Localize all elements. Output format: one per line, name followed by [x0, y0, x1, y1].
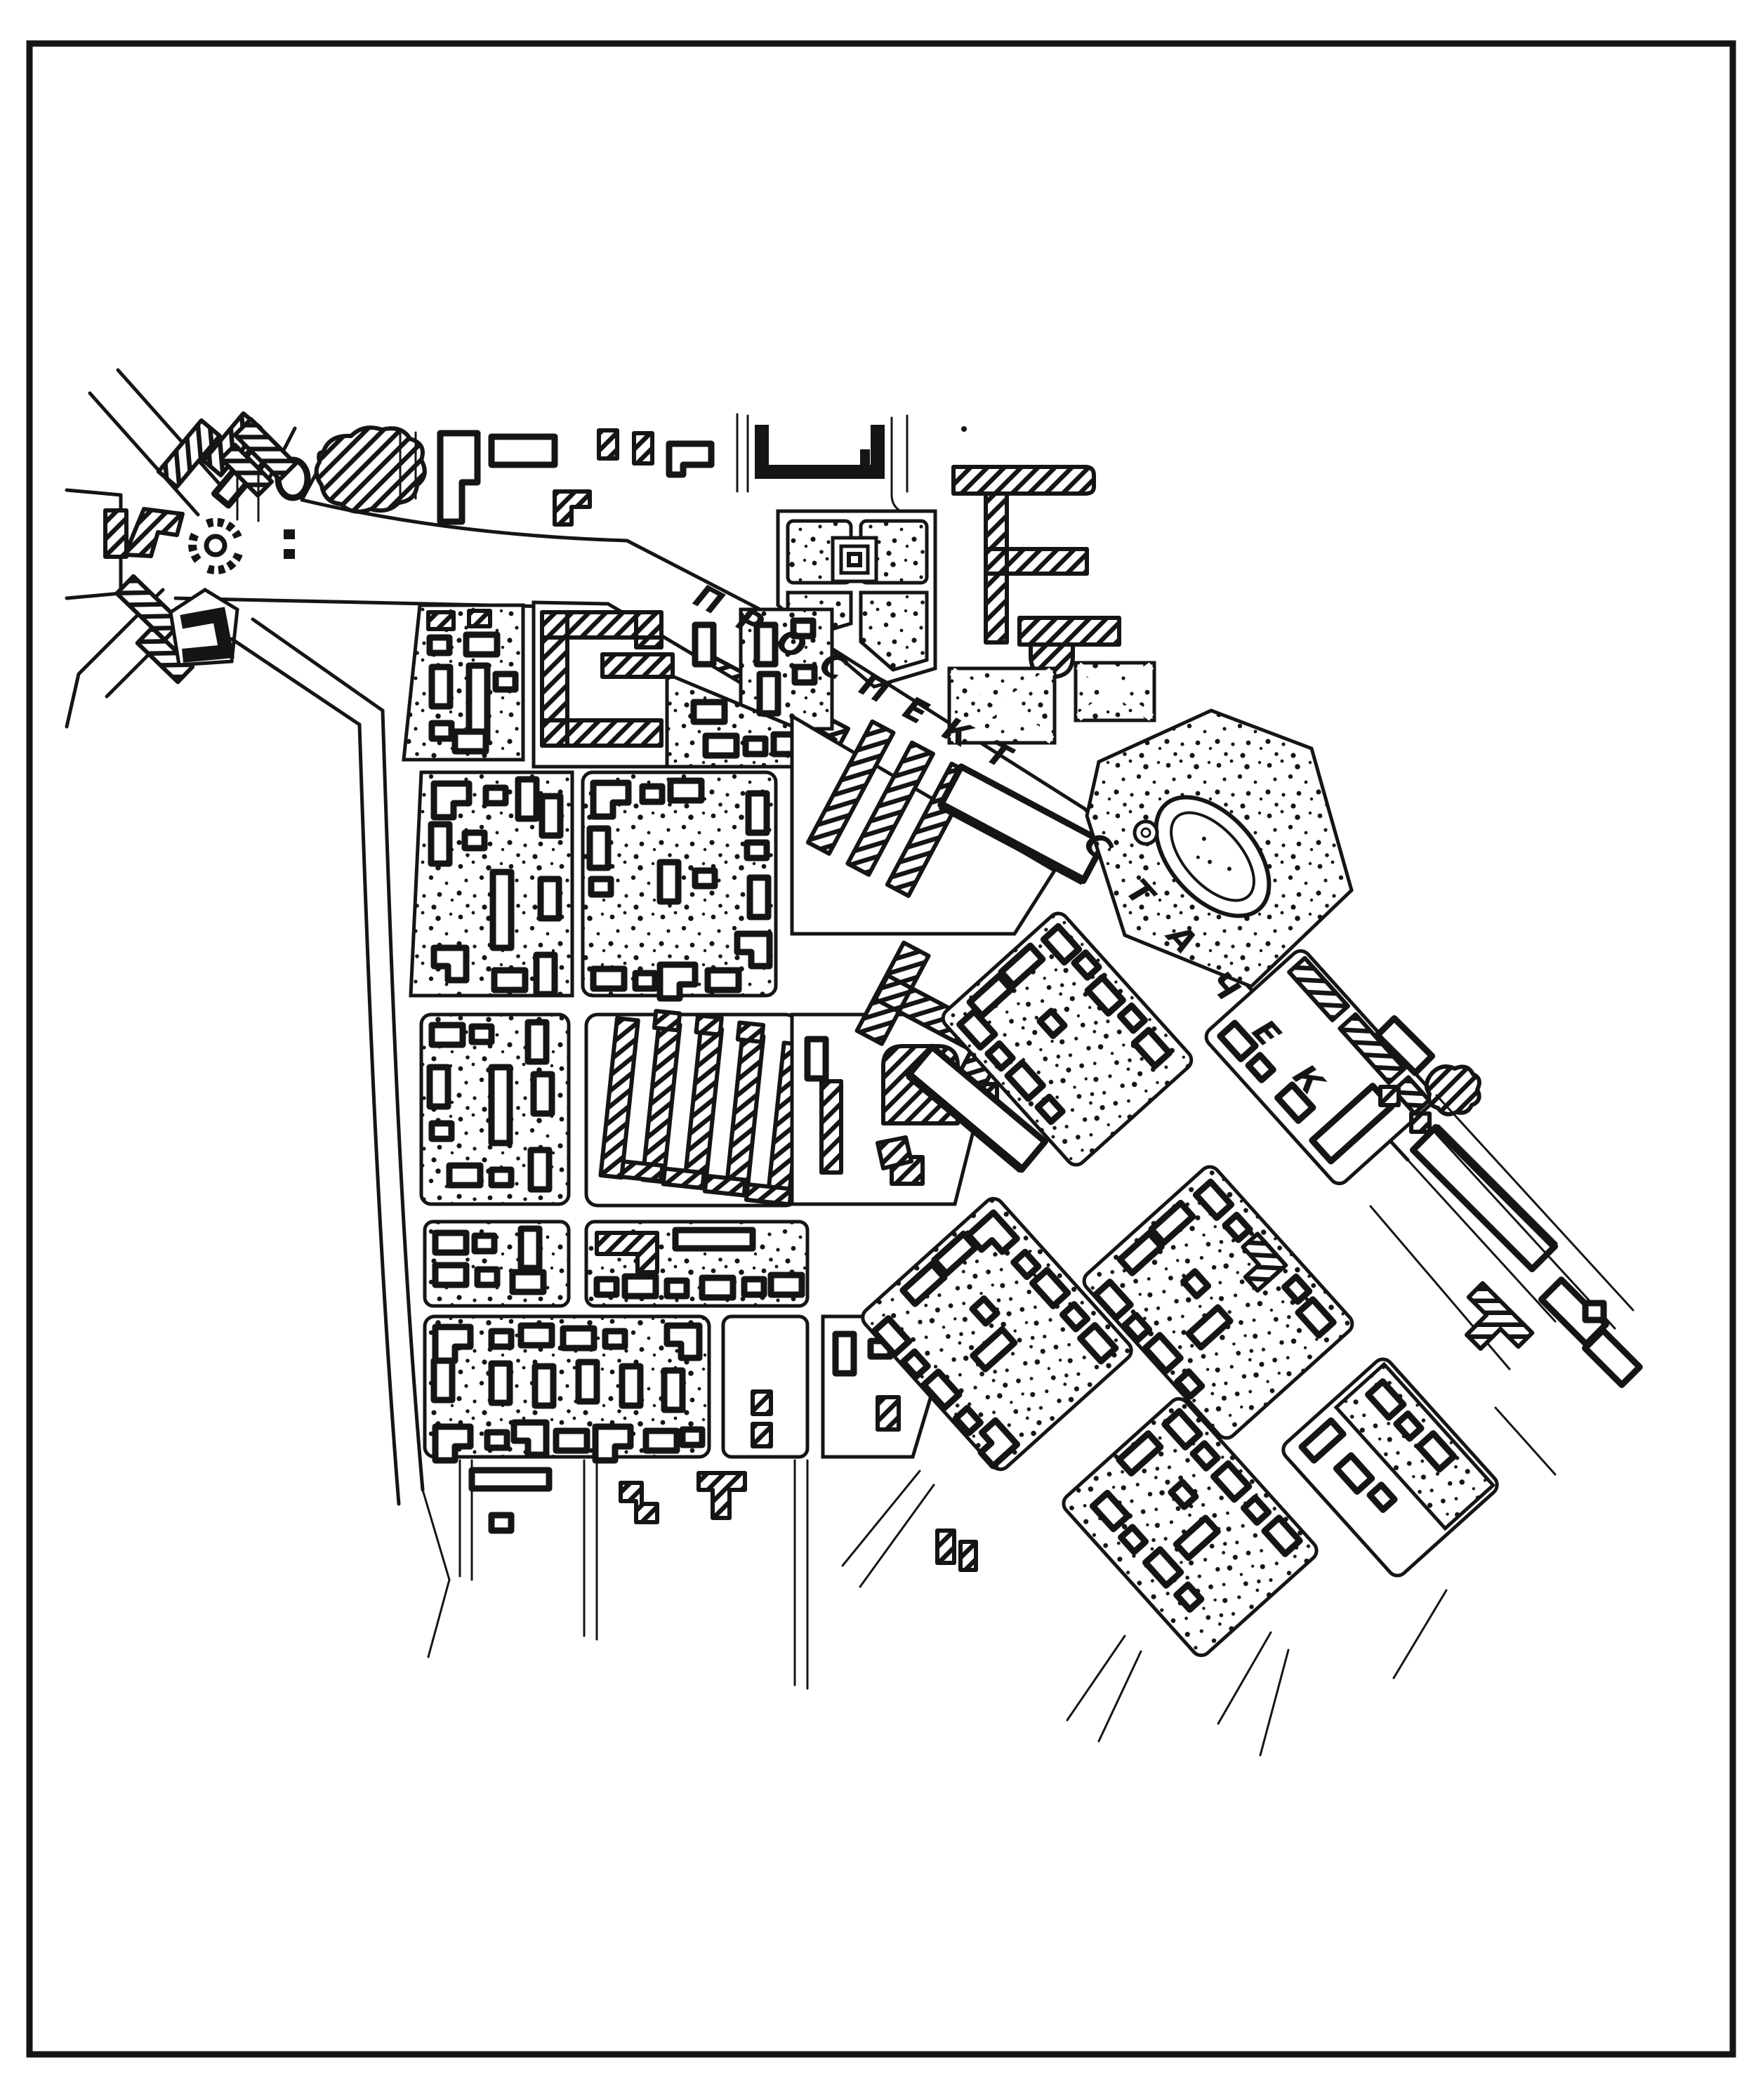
block-a1 [404, 605, 523, 760]
plan-sheet: П Р О С П Е К Т С Т А Ч Е К [0, 0, 1763, 2100]
tree-mass [317, 428, 425, 512]
block-b5 [723, 1316, 807, 1457]
block-a5 [425, 1316, 709, 1460]
fountain [1135, 821, 1157, 844]
roundabout-center-island [206, 536, 225, 555]
block-a4 [425, 1222, 569, 1306]
block-b4 [586, 1222, 807, 1306]
city-plan-map: П Р О С П Е К Т С Т А Ч Е К [0, 0, 1763, 2100]
block-b2 [583, 772, 776, 998]
road-marker [284, 549, 295, 559]
monument [849, 554, 860, 565]
ink-speck [961, 426, 967, 432]
block-a2 [411, 772, 572, 996]
block-a3 [421, 1015, 569, 1204]
parallel-slab-row [586, 1007, 808, 1206]
road-marker [284, 529, 295, 539]
courtyard-complex [542, 612, 673, 746]
tree-clump [1427, 1066, 1479, 1114]
